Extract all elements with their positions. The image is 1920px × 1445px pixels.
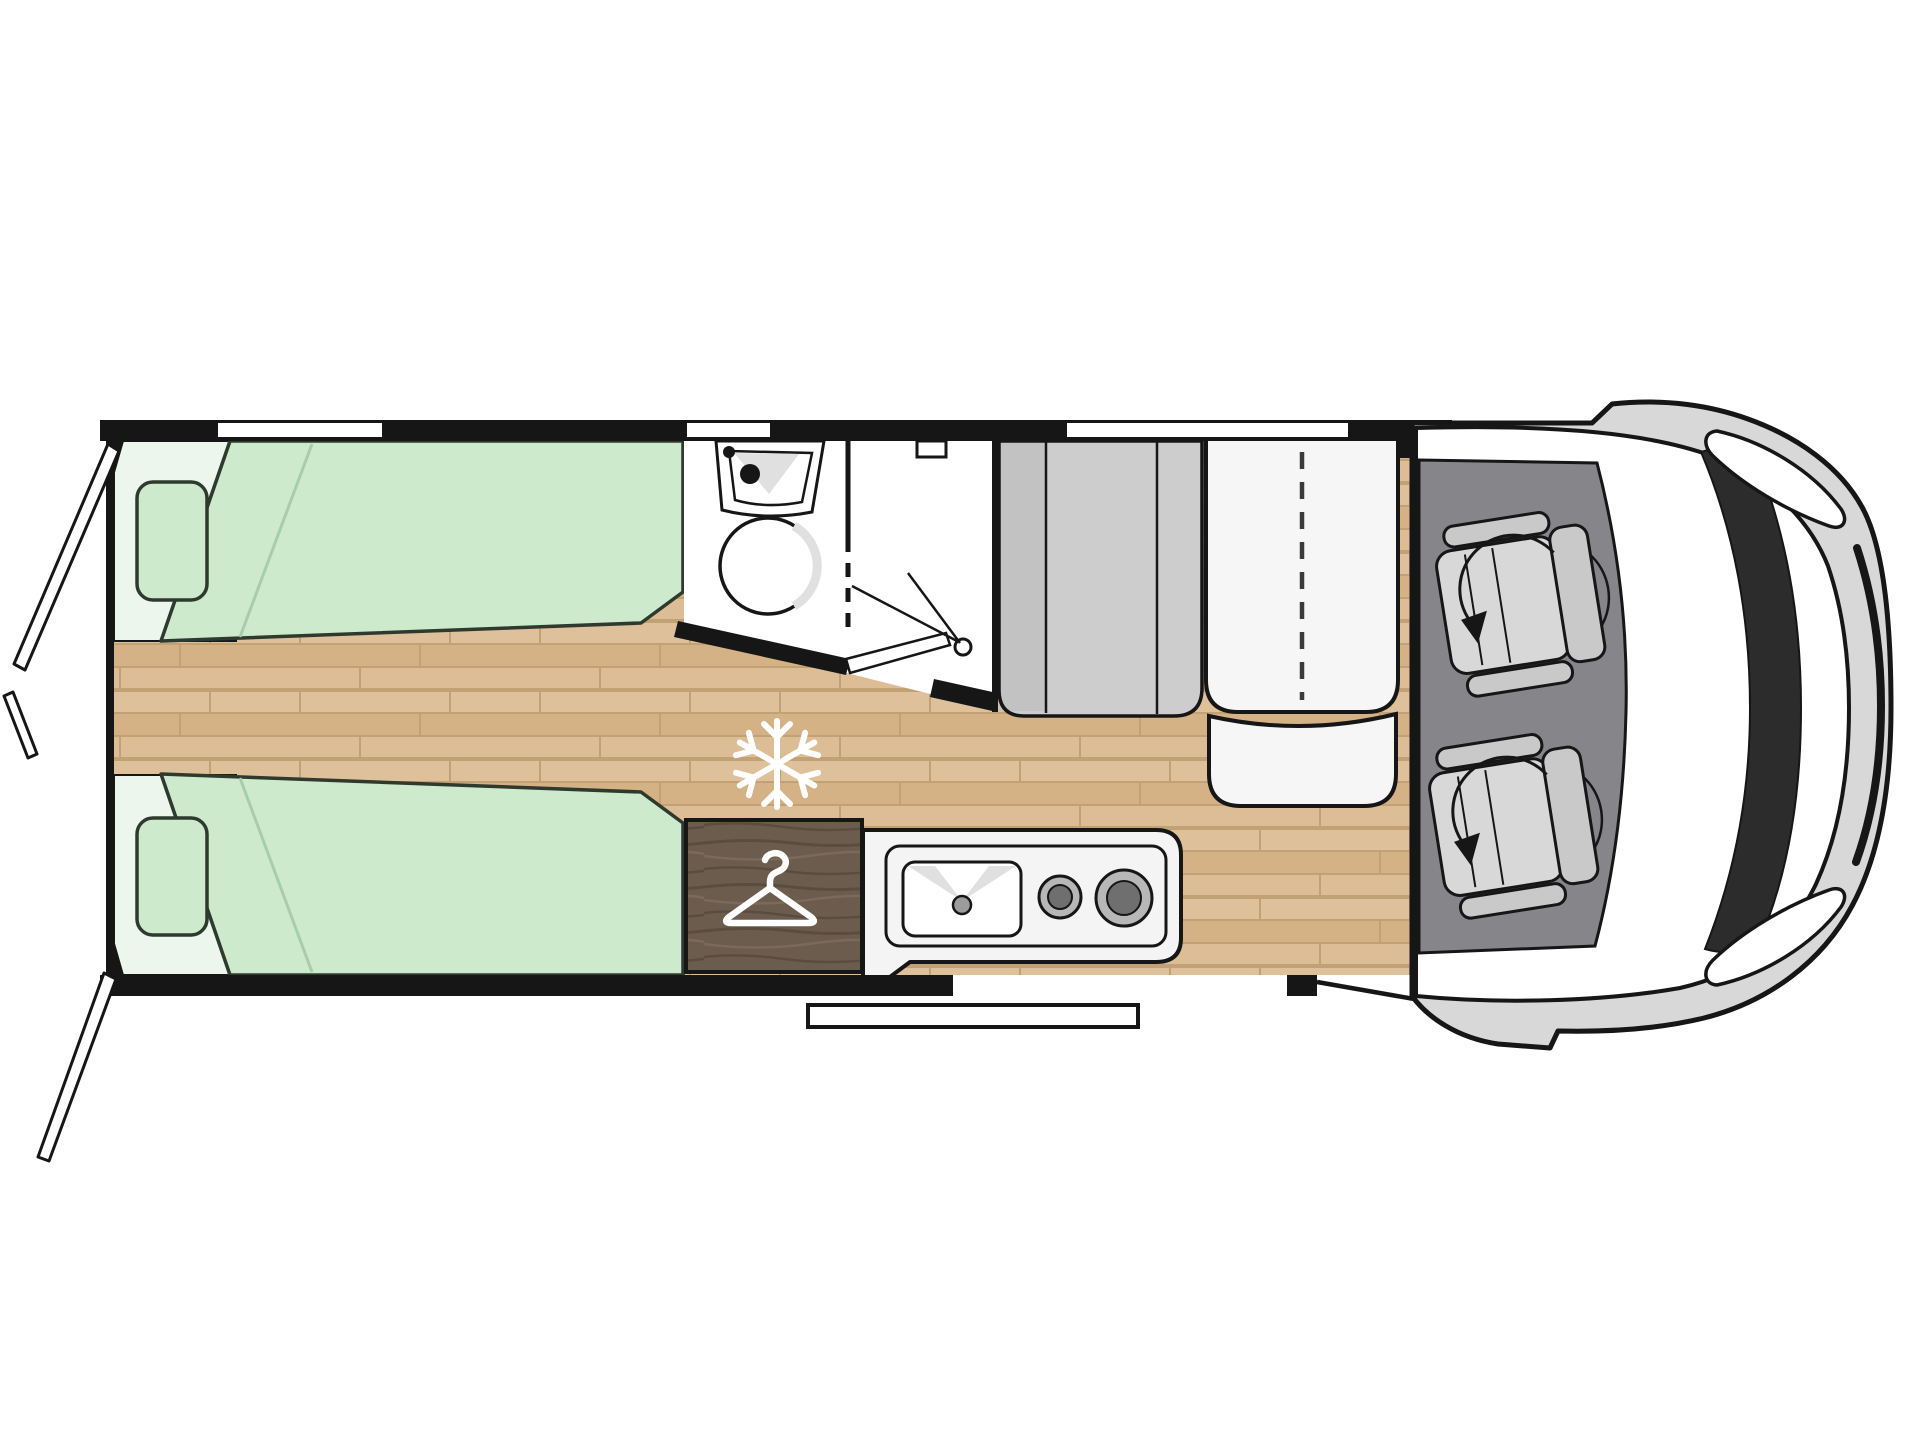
twin-bed-top — [161, 441, 683, 641]
motorhome-floorplan — [0, 0, 1920, 1440]
wall-bottom-stub — [1287, 975, 1317, 996]
wardrobe-cabinet — [686, 820, 862, 972]
window-dinette — [1067, 423, 1348, 437]
cab-area — [1412, 402, 1891, 1048]
wall-bottom — [100, 975, 953, 996]
entry-step[interactable] — [808, 1005, 1138, 1027]
faucet-icon — [740, 464, 760, 484]
window-washroom — [687, 423, 770, 437]
sink-drain — [953, 896, 971, 914]
pillow-bottom — [137, 818, 207, 935]
wall-rear — [106, 424, 114, 991]
wardrobe-area — [686, 820, 862, 972]
bench-backrest — [999, 441, 1046, 711]
twin-bed-bottom — [161, 774, 683, 975]
faucet-icon — [723, 446, 735, 458]
roof-vent — [917, 441, 946, 457]
hob-burner-small-center — [1048, 885, 1072, 909]
floorplan-page — [0, 0, 1920, 1440]
window-bed — [218, 423, 382, 437]
pillow-top — [137, 482, 207, 600]
hob-burner-large-center — [1107, 881, 1141, 915]
side-seat — [1209, 714, 1396, 806]
